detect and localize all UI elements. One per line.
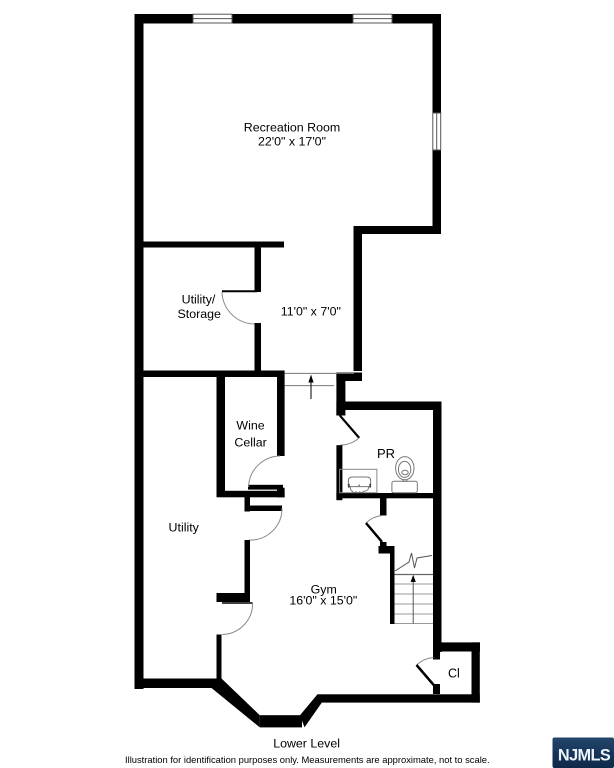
svg-text:Recreation Room: Recreation Room: [244, 121, 340, 135]
svg-text:22'0" x 17'0": 22'0" x 17'0": [258, 134, 326, 148]
svg-text:Illustration for identificatio: Illustration for identification purposes…: [125, 754, 490, 765]
svg-text:Lower Level: Lower Level: [273, 737, 340, 751]
svg-text:Utility/: Utility/: [182, 293, 216, 307]
svg-text:Storage: Storage: [177, 307, 221, 321]
svg-text:Cl: Cl: [448, 667, 460, 681]
svg-text:16'0" x 15'0": 16'0" x 15'0": [289, 594, 357, 608]
svg-text:Utility: Utility: [169, 521, 200, 535]
svg-text:11'0" x 7'0": 11'0" x 7'0": [281, 304, 341, 318]
svg-text:NJMLS: NJMLS: [558, 747, 611, 765]
svg-text:PR: PR: [377, 446, 395, 461]
svg-text:Cellar: Cellar: [234, 436, 266, 450]
svg-text:Wine: Wine: [236, 419, 264, 433]
